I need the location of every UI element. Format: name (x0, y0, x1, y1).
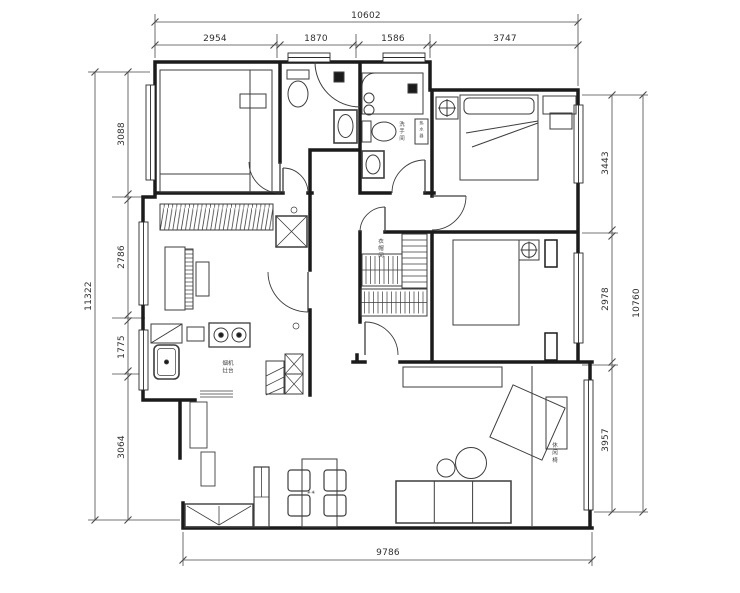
entry-steps (190, 402, 215, 486)
dim-top-seg-3: 1586 (381, 34, 405, 44)
coffee-table (437, 448, 487, 479)
table-decor-icon: ✳✳ (307, 490, 315, 496)
wardrobe (160, 204, 307, 247)
bed-secondary (160, 70, 272, 192)
bathroom-secondary-fixtures (362, 73, 428, 178)
dim-left-seg-4: 3064 (117, 435, 127, 459)
dim-left-total: 11322 (84, 281, 94, 311)
dim-top-seg-1: 2954 (203, 34, 227, 44)
dim-bottom-total: 9786 (376, 548, 400, 558)
closet-cabinets (361, 234, 427, 316)
dim-top-total: 10602 (351, 11, 381, 21)
bathroom-main-fixtures (287, 62, 360, 143)
kitchen-fixtures (151, 323, 303, 397)
dim-top-seg-4: 3747 (493, 34, 517, 44)
dining-set (288, 459, 346, 527)
label-bathroom: 洗手间 (399, 120, 405, 142)
label-closet: 衣帽间 (378, 237, 384, 259)
dimension-labels: 10602 2954 1870 1586 3747 11322 3088 278… (84, 11, 642, 558)
dimension-lines (88, 14, 648, 566)
dim-right-total: 10760 (632, 288, 642, 318)
bedroom-middle-furniture (453, 240, 539, 325)
label-water-heater: 热水器 (419, 120, 424, 139)
floor-plan-drawing: 10602 2954 1870 1586 3747 11322 3088 278… (0, 0, 740, 593)
dim-left-seg-3: 1775 (117, 335, 127, 359)
wall-stub (545, 333, 557, 360)
tv-cabinet (403, 367, 502, 387)
dim-top-seg-2: 1870 (304, 34, 328, 44)
walls (143, 62, 592, 528)
wall-stub (545, 240, 557, 267)
dim-left-seg-1: 3088 (117, 122, 127, 146)
sofa (396, 481, 511, 523)
floor-plan-canvas: 10602 2954 1870 1586 3747 11322 3088 278… (0, 0, 740, 593)
piano (165, 247, 209, 310)
dim-right-seg-2: 2978 (601, 287, 611, 311)
bed-master (436, 95, 576, 180)
label-kitchen-stove: 灶台 (222, 367, 234, 375)
dim-right-seg-3: 3957 (601, 428, 611, 452)
dim-right-seg-1: 3443 (601, 151, 611, 175)
label-kitchen-hood: 烟机 (222, 359, 234, 367)
dim-left-seg-2: 2786 (117, 245, 127, 269)
label-lounge: 休闲椅 (552, 441, 558, 464)
shoe-cabinet (185, 467, 269, 527)
